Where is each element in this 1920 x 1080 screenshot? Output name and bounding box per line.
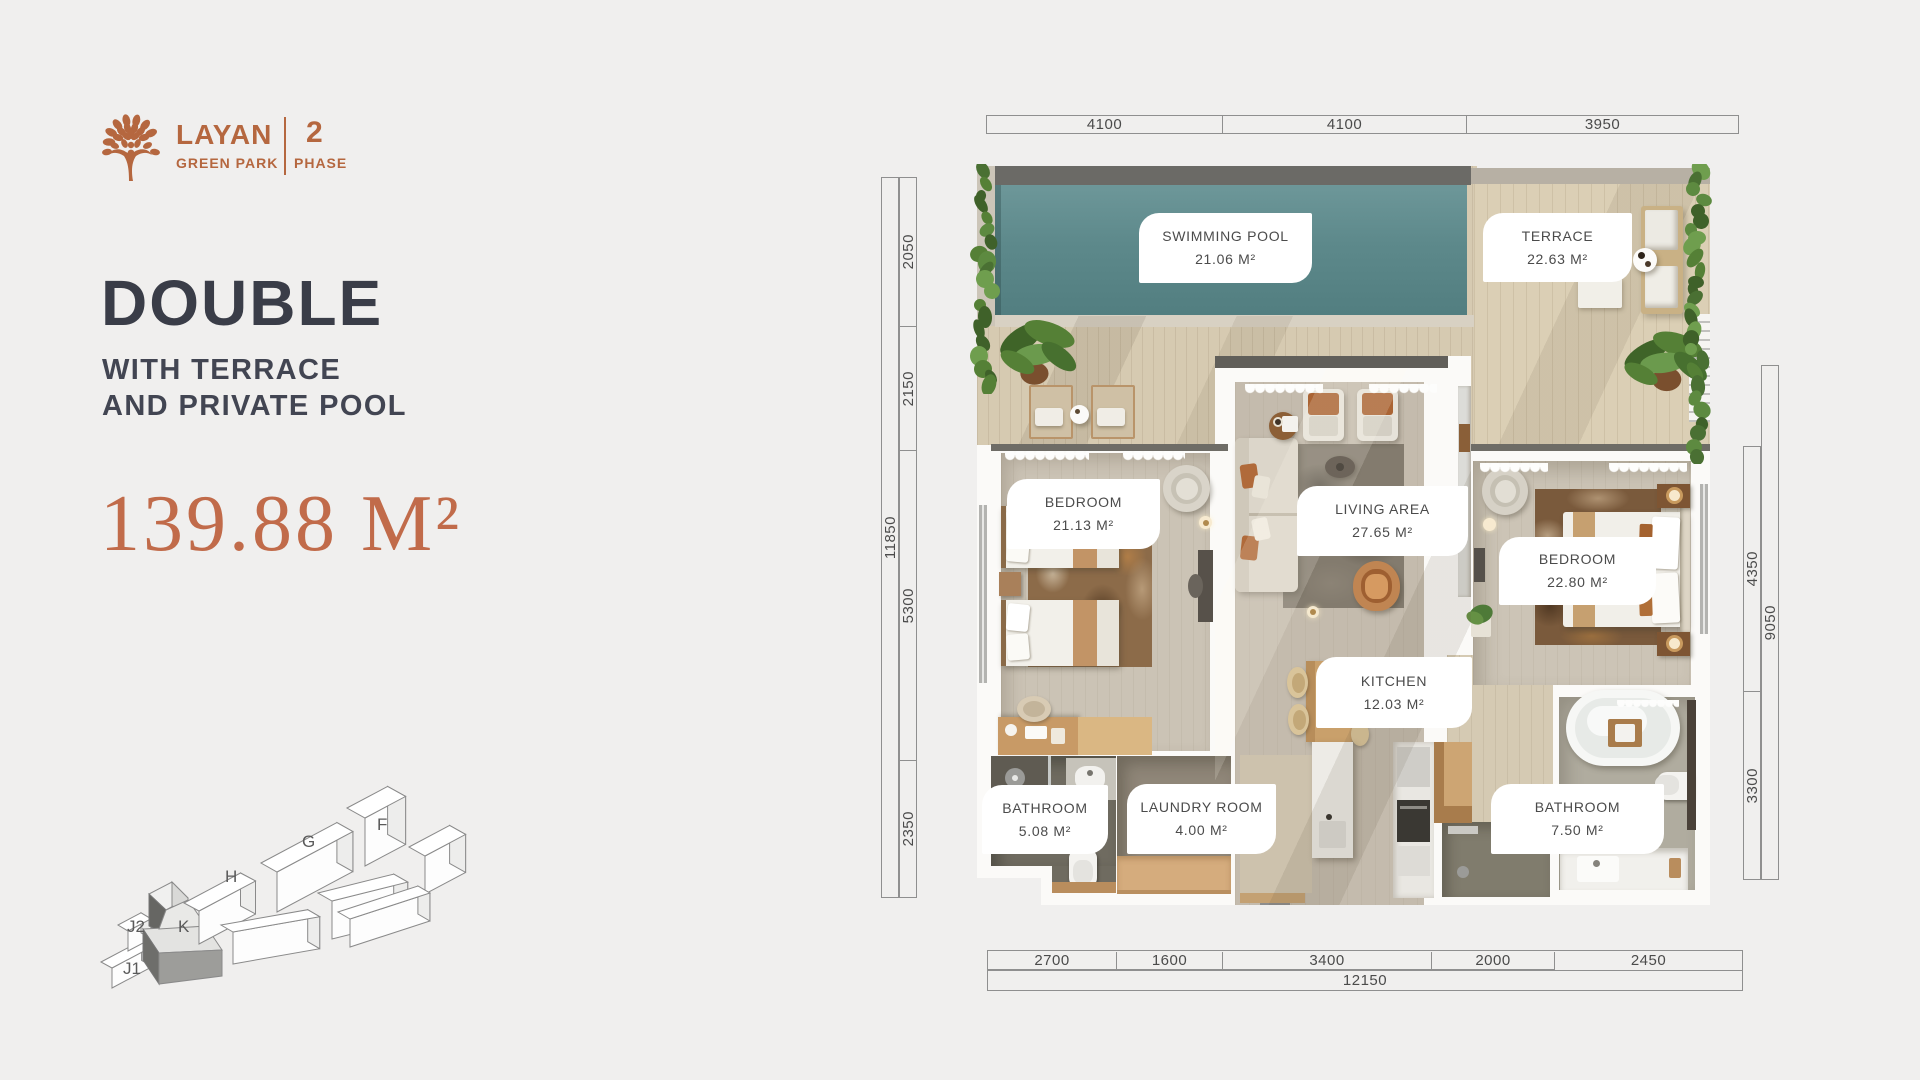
svg-text:J1: J1 bbox=[123, 959, 141, 978]
svg-text:J2: J2 bbox=[127, 917, 145, 936]
svg-text:F: F bbox=[377, 815, 387, 834]
svg-text:G: G bbox=[302, 832, 315, 851]
svg-text:K: K bbox=[178, 917, 190, 936]
svg-text:H: H bbox=[225, 867, 237, 886]
